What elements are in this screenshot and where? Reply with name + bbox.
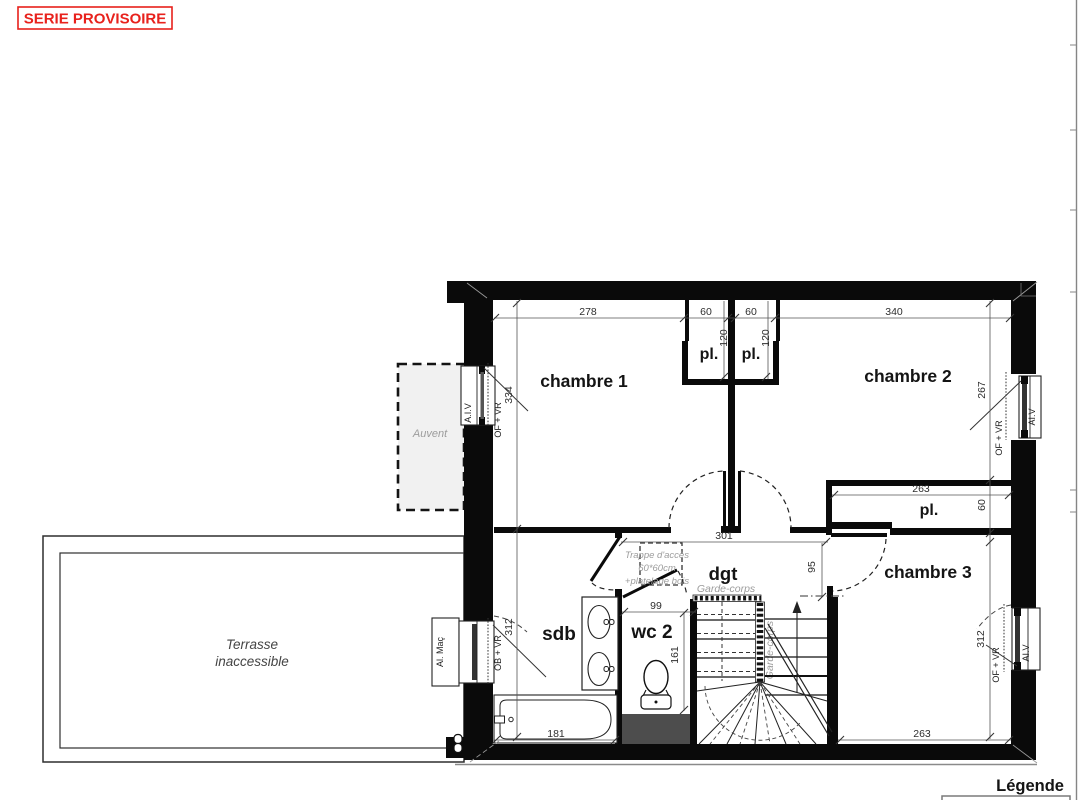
svg-text:301: 301 [715, 530, 733, 542]
svg-text:pl.: pl. [742, 346, 761, 363]
svg-text:267: 267 [976, 381, 988, 399]
svg-text:sdb: sdb [542, 624, 576, 645]
svg-text:OB + VR: OB + VR [493, 635, 503, 671]
svg-text:340: 340 [885, 306, 903, 318]
svg-text:334: 334 [503, 386, 515, 404]
svg-text:263: 263 [913, 728, 931, 740]
svg-text:60: 60 [700, 306, 712, 318]
svg-text:95: 95 [806, 561, 818, 573]
svg-text:312: 312 [975, 630, 987, 648]
svg-text:A.I.V: A.I.V [463, 403, 473, 423]
svg-text:+platelage bois: +platelage bois [625, 576, 689, 587]
svg-text:OF + VR: OF + VR [493, 402, 503, 438]
svg-text:120: 120 [760, 329, 772, 347]
svg-text:AI.V: AI.V [1021, 644, 1031, 661]
svg-text:OF + VR: OF + VR [991, 647, 1001, 683]
svg-text:dgt: dgt [709, 563, 738, 584]
svg-text:60: 60 [976, 499, 988, 511]
svg-text:181: 181 [547, 728, 565, 740]
svg-text:Auvent: Auvent [412, 428, 448, 440]
svg-text:chambre 1: chambre 1 [540, 371, 628, 391]
svg-text:wc 2: wc 2 [630, 622, 672, 643]
svg-text:Légende: Légende [996, 777, 1064, 795]
svg-text:60: 60 [745, 306, 757, 318]
svg-text:Garde-corps: Garde-corps [697, 583, 756, 595]
svg-text:pl.: pl. [920, 502, 939, 519]
svg-text:Trappe d'accès: Trappe d'accès [625, 550, 689, 561]
svg-text:60*60cm: 60*60cm [638, 563, 676, 574]
svg-text:99: 99 [650, 600, 662, 612]
svg-text:chambre 3: chambre 3 [884, 562, 972, 582]
svg-text:AI.V: AI.V [1027, 408, 1037, 425]
svg-text:inaccessible: inaccessible [215, 654, 289, 669]
svg-text:312: 312 [503, 618, 515, 636]
svg-text:SERIE PROVISOIRE: SERIE PROVISOIRE [24, 11, 167, 28]
svg-text:Al. Maç: Al. Maç [435, 637, 445, 668]
svg-text:pl.: pl. [700, 346, 719, 363]
svg-text:263: 263 [912, 483, 930, 495]
svg-text:chambre 2: chambre 2 [864, 366, 952, 386]
svg-text:120: 120 [718, 329, 730, 347]
svg-text:Terrasse: Terrasse [226, 637, 278, 652]
svg-text:278: 278 [579, 306, 597, 318]
svg-text:161: 161 [669, 646, 681, 664]
svg-text:OF + VR: OF + VR [994, 420, 1004, 456]
